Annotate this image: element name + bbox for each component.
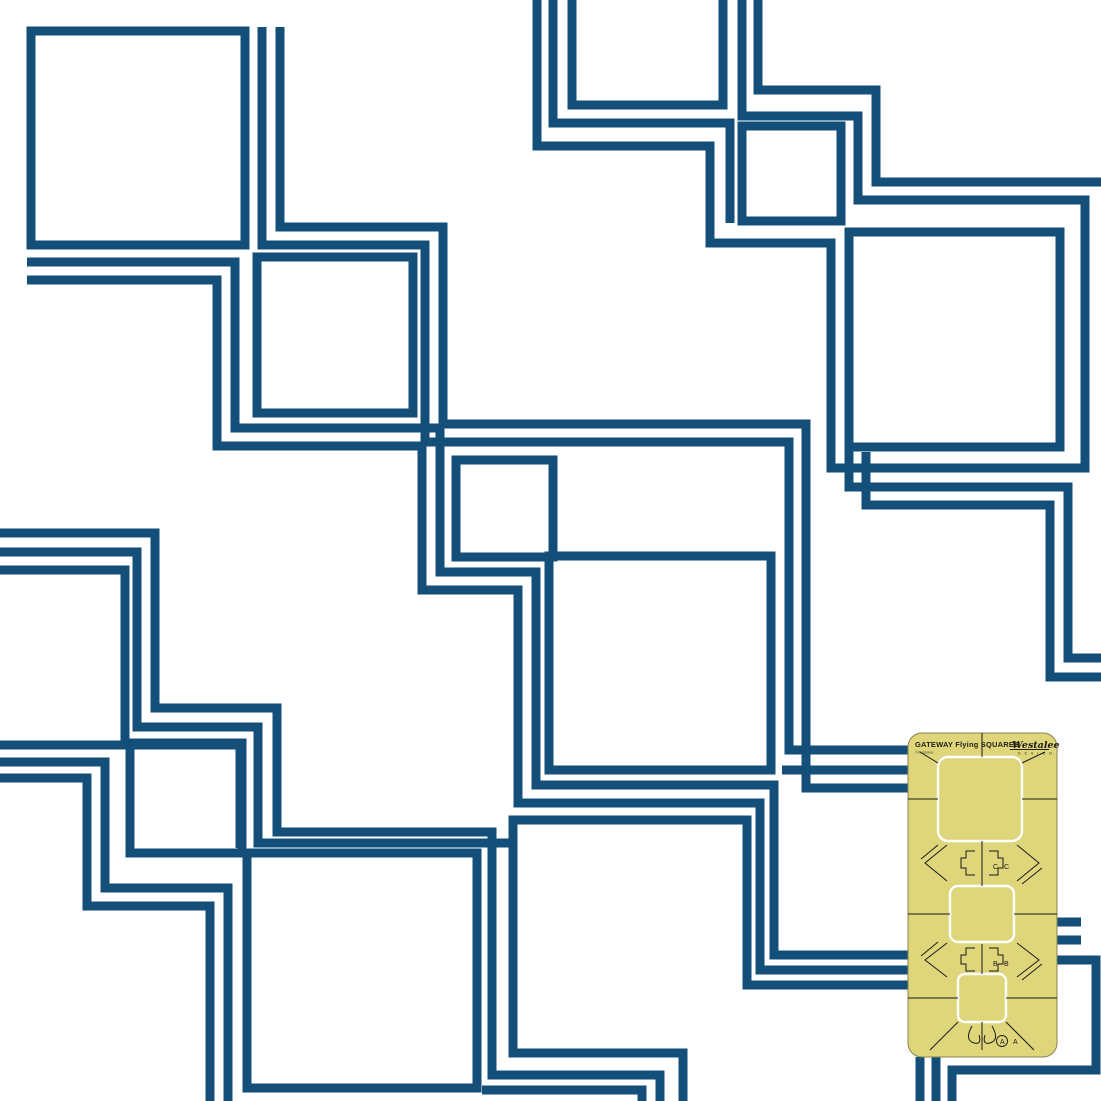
template-letter: B (1004, 961, 1009, 968)
template-letter: C (993, 864, 998, 871)
gateway-template-tool: CCBBAA GATEWAY Flying SQUARES ©Westalee … (908, 733, 1060, 1057)
brand-logo-sub: D E S I G N (1018, 752, 1053, 756)
square-b3 (849, 232, 1060, 447)
quilt-pattern-screenshot: CCBBAA GATEWAY Flying SQUARES ©Westalee … (0, 0, 1101, 1101)
echo-c-1 (0, 762, 228, 1101)
quilt-pattern-canvas: CCBBAA GATEWAY Flying SQUARES ©Westalee … (0, 0, 1101, 1101)
square-a4 (549, 556, 771, 770)
square-c1 (0, 570, 125, 745)
square-a3 (456, 460, 553, 557)
template-letter: A (1000, 1039, 1005, 1046)
square-d1-open (513, 820, 950, 1101)
square-b2 (742, 126, 841, 221)
entry-b-left (553, 0, 730, 223)
b3-wrap-1 (849, 447, 1101, 658)
template-title: GATEWAY Flying SQUARES (915, 740, 1019, 749)
square-a1 (31, 31, 245, 245)
template-fineprint: ©Westalee (915, 751, 934, 755)
template-letter: C (1004, 864, 1009, 871)
template-letter: B (993, 961, 998, 968)
square-c3 (247, 853, 477, 1088)
template-letter: A (1013, 1039, 1018, 1046)
square-b1 (572, 0, 723, 105)
square-c2 (130, 743, 242, 853)
square-a2 (257, 257, 413, 413)
template-body (908, 733, 1057, 1057)
echo-b-outer (758, 0, 1101, 182)
link-c1-c2 (125, 745, 240, 848)
c3-tail (482, 1090, 642, 1101)
entry-c-2 (0, 552, 509, 843)
